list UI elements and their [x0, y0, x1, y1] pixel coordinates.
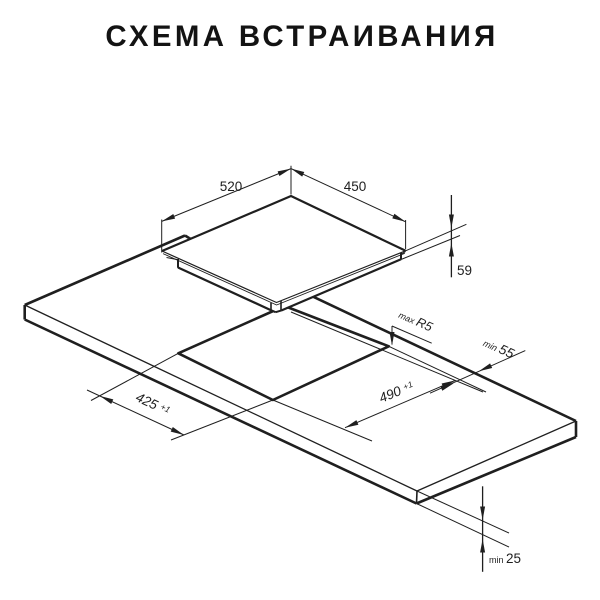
- svg-text:520: 520: [220, 179, 243, 194]
- svg-text:min 25: min 25: [489, 551, 521, 566]
- svg-text:490 +1: 490 +1: [377, 378, 416, 406]
- svg-text:min 55: min 55: [481, 335, 517, 362]
- svg-text:59: 59: [457, 263, 472, 278]
- svg-text:450: 450: [344, 179, 367, 194]
